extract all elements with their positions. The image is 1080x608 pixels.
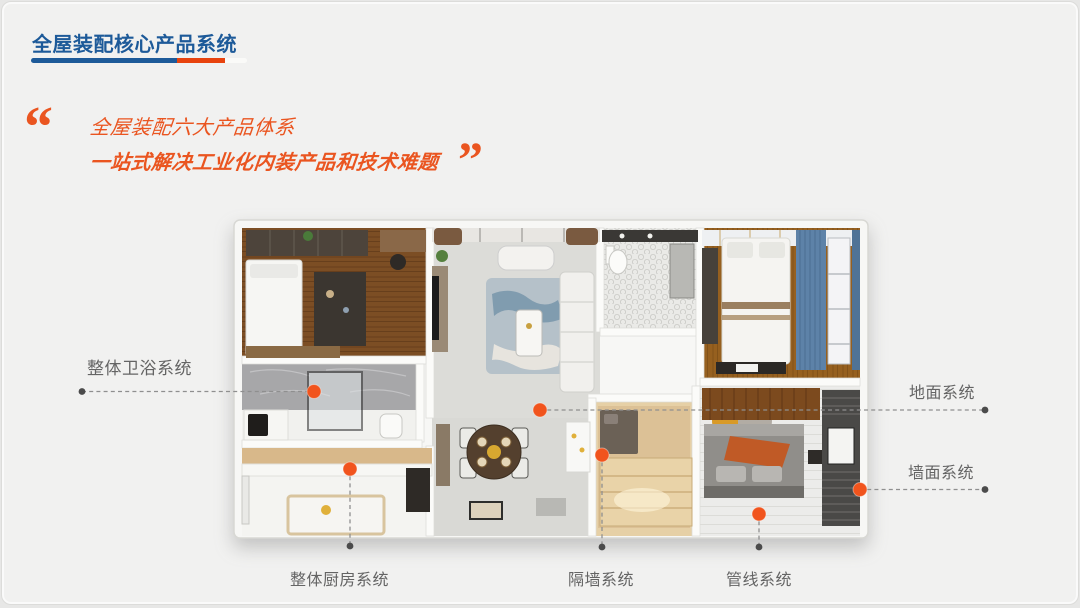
callout-endpoint-wall bbox=[982, 486, 989, 493]
callout-label-floor: 地面系统 bbox=[909, 379, 975, 403]
title-underline bbox=[31, 58, 247, 63]
quote-headline: 一站式解决工业化内装产品和技术难题 bbox=[88, 146, 440, 175]
callout-endpoint-floor bbox=[982, 407, 989, 414]
callout-label-kitchen: 整体厨房系统 bbox=[290, 566, 389, 590]
close-quote-mark: ” bbox=[458, 134, 483, 184]
underline-segment-white bbox=[225, 58, 247, 63]
underline-segment-orange bbox=[177, 58, 225, 63]
underline-segment-blue bbox=[31, 58, 177, 63]
callout-label-wall: 墙面系统 bbox=[908, 459, 974, 483]
callout-endpoint-pipeline bbox=[756, 544, 763, 551]
open-quote-mark: “ bbox=[24, 98, 53, 156]
quote-subtitle: 全屋装配六大产品体系 bbox=[88, 111, 296, 140]
callout-endpoint-partition bbox=[599, 544, 606, 551]
callout-endpoint-bathroom bbox=[79, 388, 86, 395]
callout-label-partition: 隔墙系统 bbox=[568, 566, 634, 590]
floorplan-image bbox=[230, 214, 872, 544]
callout-label-pipeline: 管线系统 bbox=[726, 566, 792, 590]
slide-root: 全屋装配核心产品系统 “ 全屋装配六大产品体系 一站式解决工业化内装产品和技术难… bbox=[1, 1, 1079, 605]
page-title: 全屋装配核心产品系统 bbox=[32, 28, 237, 57]
callout-label-bathroom: 整体卫浴系统 bbox=[87, 354, 192, 379]
room-master-bedroom bbox=[702, 230, 860, 374]
room-kids-bedroom bbox=[598, 406, 692, 528]
